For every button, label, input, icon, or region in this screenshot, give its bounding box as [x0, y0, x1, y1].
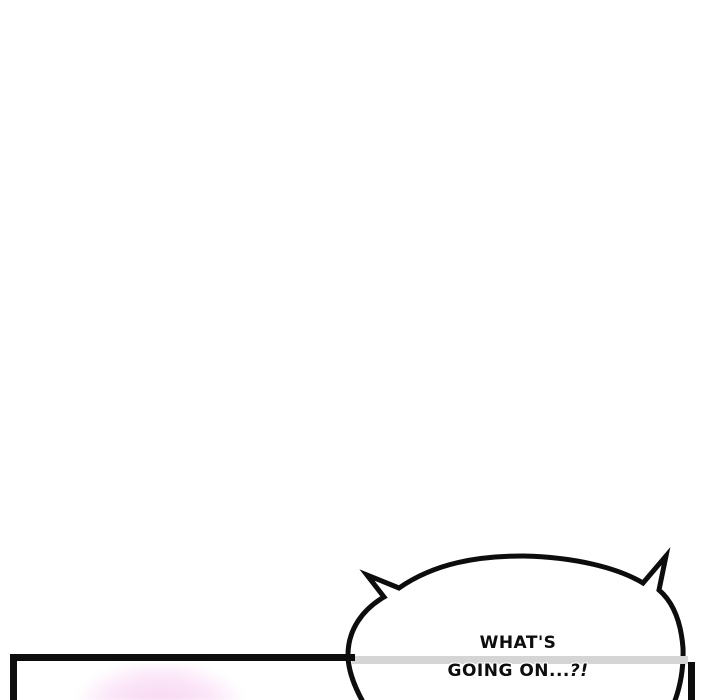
speech-bubble — [0, 0, 720, 700]
panel-border-left — [10, 654, 17, 700]
panel-border-top — [10, 654, 355, 661]
dialogue-line-2-main: GOING ON... — [447, 661, 569, 681]
speech-bubble-text: WHAT'S GOING ON...?! — [388, 633, 648, 681]
dialogue-line-1: WHAT'S — [388, 633, 648, 653]
dialogue-line-2-emphasis: ?! — [570, 661, 589, 681]
dialogue-line-2: GOING ON...?! — [388, 661, 648, 681]
panel-border-right — [688, 662, 695, 700]
comic-page: WHAT'S GOING ON...?! — [0, 0, 720, 700]
